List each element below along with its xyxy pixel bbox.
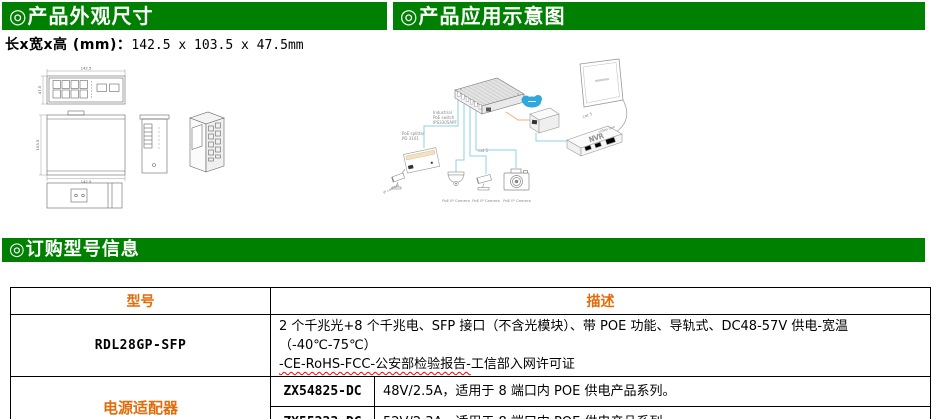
section-header-appearance: ◎产品外观尺寸 (2, 2, 387, 30)
column-header-model: 型号 (11, 288, 271, 315)
part-number-cell-2: ZX55223-DC (271, 407, 375, 419)
part-description-cell-2: 52V/2.3A，适用于 8 端口内 POE 供电产品系列。 (375, 407, 931, 419)
ordering-table: 型号 描述 RDL28GP-SFP 2 个千兆光+8 个千兆电、SFP 接口（不… (10, 287, 931, 419)
bullet-camera-graphic (477, 175, 492, 191)
application-diagram: NVR (378, 56, 680, 228)
column-header-description: 描述 (271, 288, 931, 315)
model-cell: RDL28GP-SFP (11, 315, 271, 377)
size-value: 142.5 x 103.5 x 47.5mm (131, 38, 303, 53)
dome-camera-graphic (448, 172, 464, 186)
monitor-graphic (580, 59, 623, 107)
section-header-ordering: ◎订购型号信息 (2, 238, 925, 262)
splitter-label-line2: PD 3101 (402, 136, 419, 141)
description-line2-rest: 工信部入网许可证 (471, 357, 575, 372)
dim-width-label: 142.5 (81, 66, 92, 71)
dslr-camera-graphic (504, 169, 529, 190)
dim-depth-label: 103.5 (35, 139, 40, 150)
part-number-cell-1: ZX54825-DC (271, 377, 375, 407)
dim-height-label: 47.5 (37, 85, 42, 94)
nvr-graphic: NVR (567, 126, 622, 156)
bottom-view-drawing (47, 183, 122, 208)
table-header-row: 型号 描述 (11, 288, 931, 315)
size-label: 长x宽x高 (mm)： (5, 37, 131, 53)
ordering-title: ◎订购型号信息 (9, 239, 140, 260)
description-line2: -CE-RoHS-FCC-公安部检验报告-工信部入网许可证 (279, 355, 922, 374)
poe-camera-label-2: PoE IP Camera (472, 198, 500, 203)
datasheet-page: ◎产品外观尺寸 ◎产品应用示意图 长x宽x高 (mm)：142.5 x 103.… (0, 0, 943, 419)
application-title: ◎产品应用示意图 (400, 4, 565, 28)
poe-camera-label-1: PoE IP Camera (442, 198, 470, 203)
poe-splitter-graphic (403, 148, 439, 173)
section-header-application: ◎产品应用示意图 (393, 2, 925, 30)
cat5-label-b: cat 5 (582, 111, 594, 119)
cat5-label-a: cat 5 (478, 148, 488, 153)
video-cable (615, 98, 627, 133)
media-converter-graphic (530, 108, 559, 133)
fiber-cable (506, 112, 530, 120)
table-row-adapter-1: 电源适配器 ZX54825-DC 48V/2.5A，适用于 8 端口内 POE … (11, 377, 931, 407)
switch-label-line3: IPS3305APF (433, 120, 457, 125)
spellcheck-marked-text: -CE-RoHS-FCC-公安部检验报告- (279, 357, 471, 372)
front-view-drawing (41, 69, 125, 104)
dim-width-label-2: 142.5 (81, 179, 92, 184)
dimension-drawings: 142.5 47.5 103.5 142.5 (28, 58, 238, 216)
poe-camera-label-3: PoE IP Camera (503, 198, 531, 203)
iso-view-drawing (190, 112, 224, 172)
description-cell: 2 个千兆光+8 个千兆电、SFP 接口（不含光模块）、带 POE 功能、导轨式… (271, 315, 931, 377)
appearance-title: ◎产品外观尺寸 (9, 4, 153, 28)
switch-graphic (455, 78, 524, 114)
table-row-switch: RDL28GP-SFP 2 个千兆光+8 个千兆电、SFP 接口（不含光模块）、… (11, 315, 931, 377)
part-description-cell-1: 48V/2.5A，适用于 8 端口内 POE 供电产品系列。 (375, 377, 931, 407)
description-line1: 2 个千兆光+8 个千兆电、SFP 接口（不含光模块）、带 POE 功能、导轨式… (279, 317, 922, 355)
size-dimensions-line: 长x宽x高 (mm)：142.5 x 103.5 x 47.5mm (5, 34, 304, 54)
side-view-drawing (140, 115, 169, 173)
cloud-icon (522, 95, 543, 108)
adapter-model-cell: 电源适配器 (11, 377, 271, 419)
top-view-drawing (39, 111, 125, 181)
